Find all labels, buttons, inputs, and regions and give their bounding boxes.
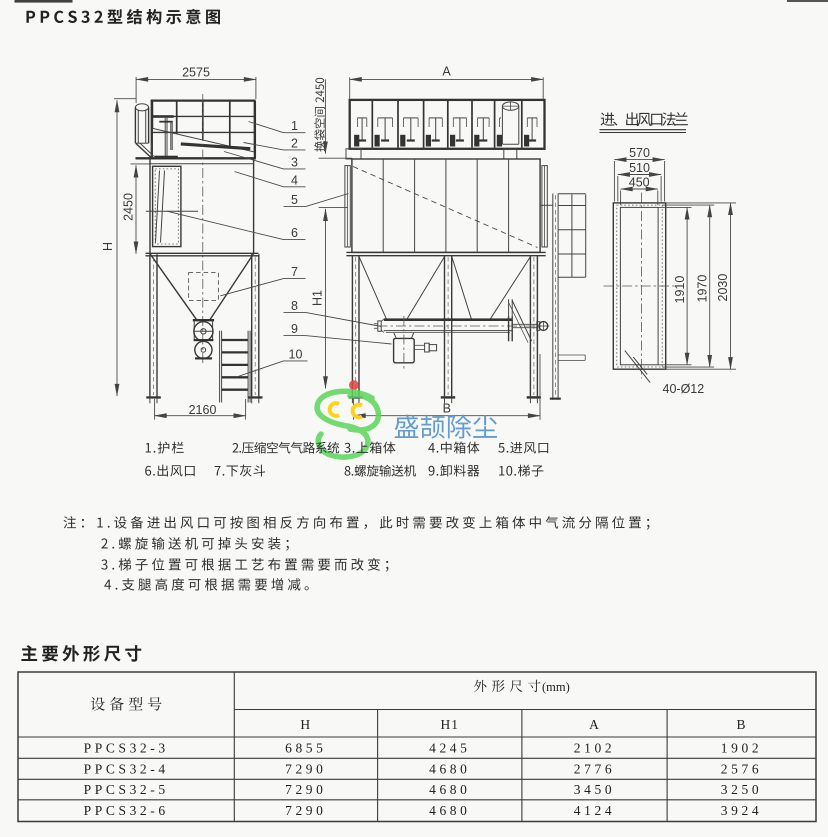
svg-text:40-Ø12: 40-Ø12: [663, 382, 705, 396]
svg-text:4: 4: [291, 173, 298, 187]
svg-text:2776: 2776: [574, 762, 615, 777]
svg-text:9: 9: [291, 322, 298, 336]
svg-text:7290: 7290: [285, 782, 326, 797]
svg-text:B: B: [736, 717, 746, 732]
svg-text:450: 450: [629, 175, 650, 189]
svg-text:B: B: [443, 401, 451, 415]
svg-text:3250: 3250: [721, 782, 762, 797]
svg-text:(mm): (mm): [542, 680, 570, 694]
svg-text:2450: 2450: [122, 193, 136, 221]
svg-text:1902: 1902: [721, 741, 762, 756]
svg-text:PPCS32-5: PPCS32-5: [84, 782, 169, 797]
svg-text:510: 510: [629, 161, 650, 175]
svg-text:8: 8: [291, 299, 298, 313]
svg-text:7290: 7290: [285, 762, 326, 777]
svg-text:7: 7: [291, 265, 298, 279]
svg-text:A: A: [589, 717, 600, 732]
svg-text:4680: 4680: [429, 762, 470, 777]
svg-text:A: A: [442, 65, 451, 79]
svg-text:1970: 1970: [695, 275, 709, 303]
svg-text:4124: 4124: [574, 803, 615, 818]
svg-text:2030: 2030: [716, 274, 730, 302]
svg-text:6855: 6855: [285, 741, 326, 756]
svg-text:1910: 1910: [673, 276, 687, 304]
svg-text:H1: H1: [310, 290, 324, 306]
svg-text:2576: 2576: [721, 762, 762, 777]
svg-text:4680: 4680: [429, 803, 470, 818]
svg-text:2575: 2575: [182, 65, 210, 79]
svg-text:PPCS32-6: PPCS32-6: [84, 803, 169, 818]
svg-text:570: 570: [629, 146, 650, 160]
svg-text:3: 3: [291, 155, 298, 169]
svg-text:6: 6: [291, 226, 298, 240]
svg-text:4245: 4245: [429, 741, 470, 756]
svg-text:PPCS32-3: PPCS32-3: [84, 741, 169, 756]
svg-text:2: 2: [291, 136, 298, 150]
svg-text:PPCS32-4: PPCS32-4: [84, 762, 169, 777]
svg-text:H1: H1: [441, 717, 460, 732]
svg-text:H: H: [101, 242, 115, 251]
svg-text:4680: 4680: [429, 782, 470, 797]
svg-text:3450: 3450: [574, 782, 615, 797]
svg-text:H: H: [300, 717, 311, 732]
svg-text:2160: 2160: [189, 403, 217, 417]
svg-text:3924: 3924: [721, 803, 762, 818]
svg-text:7290: 7290: [285, 803, 326, 818]
svg-text:5: 5: [291, 193, 298, 207]
svg-text:10: 10: [289, 347, 303, 361]
svg-text:2102: 2102: [574, 741, 615, 756]
svg-text:1: 1: [291, 119, 298, 133]
